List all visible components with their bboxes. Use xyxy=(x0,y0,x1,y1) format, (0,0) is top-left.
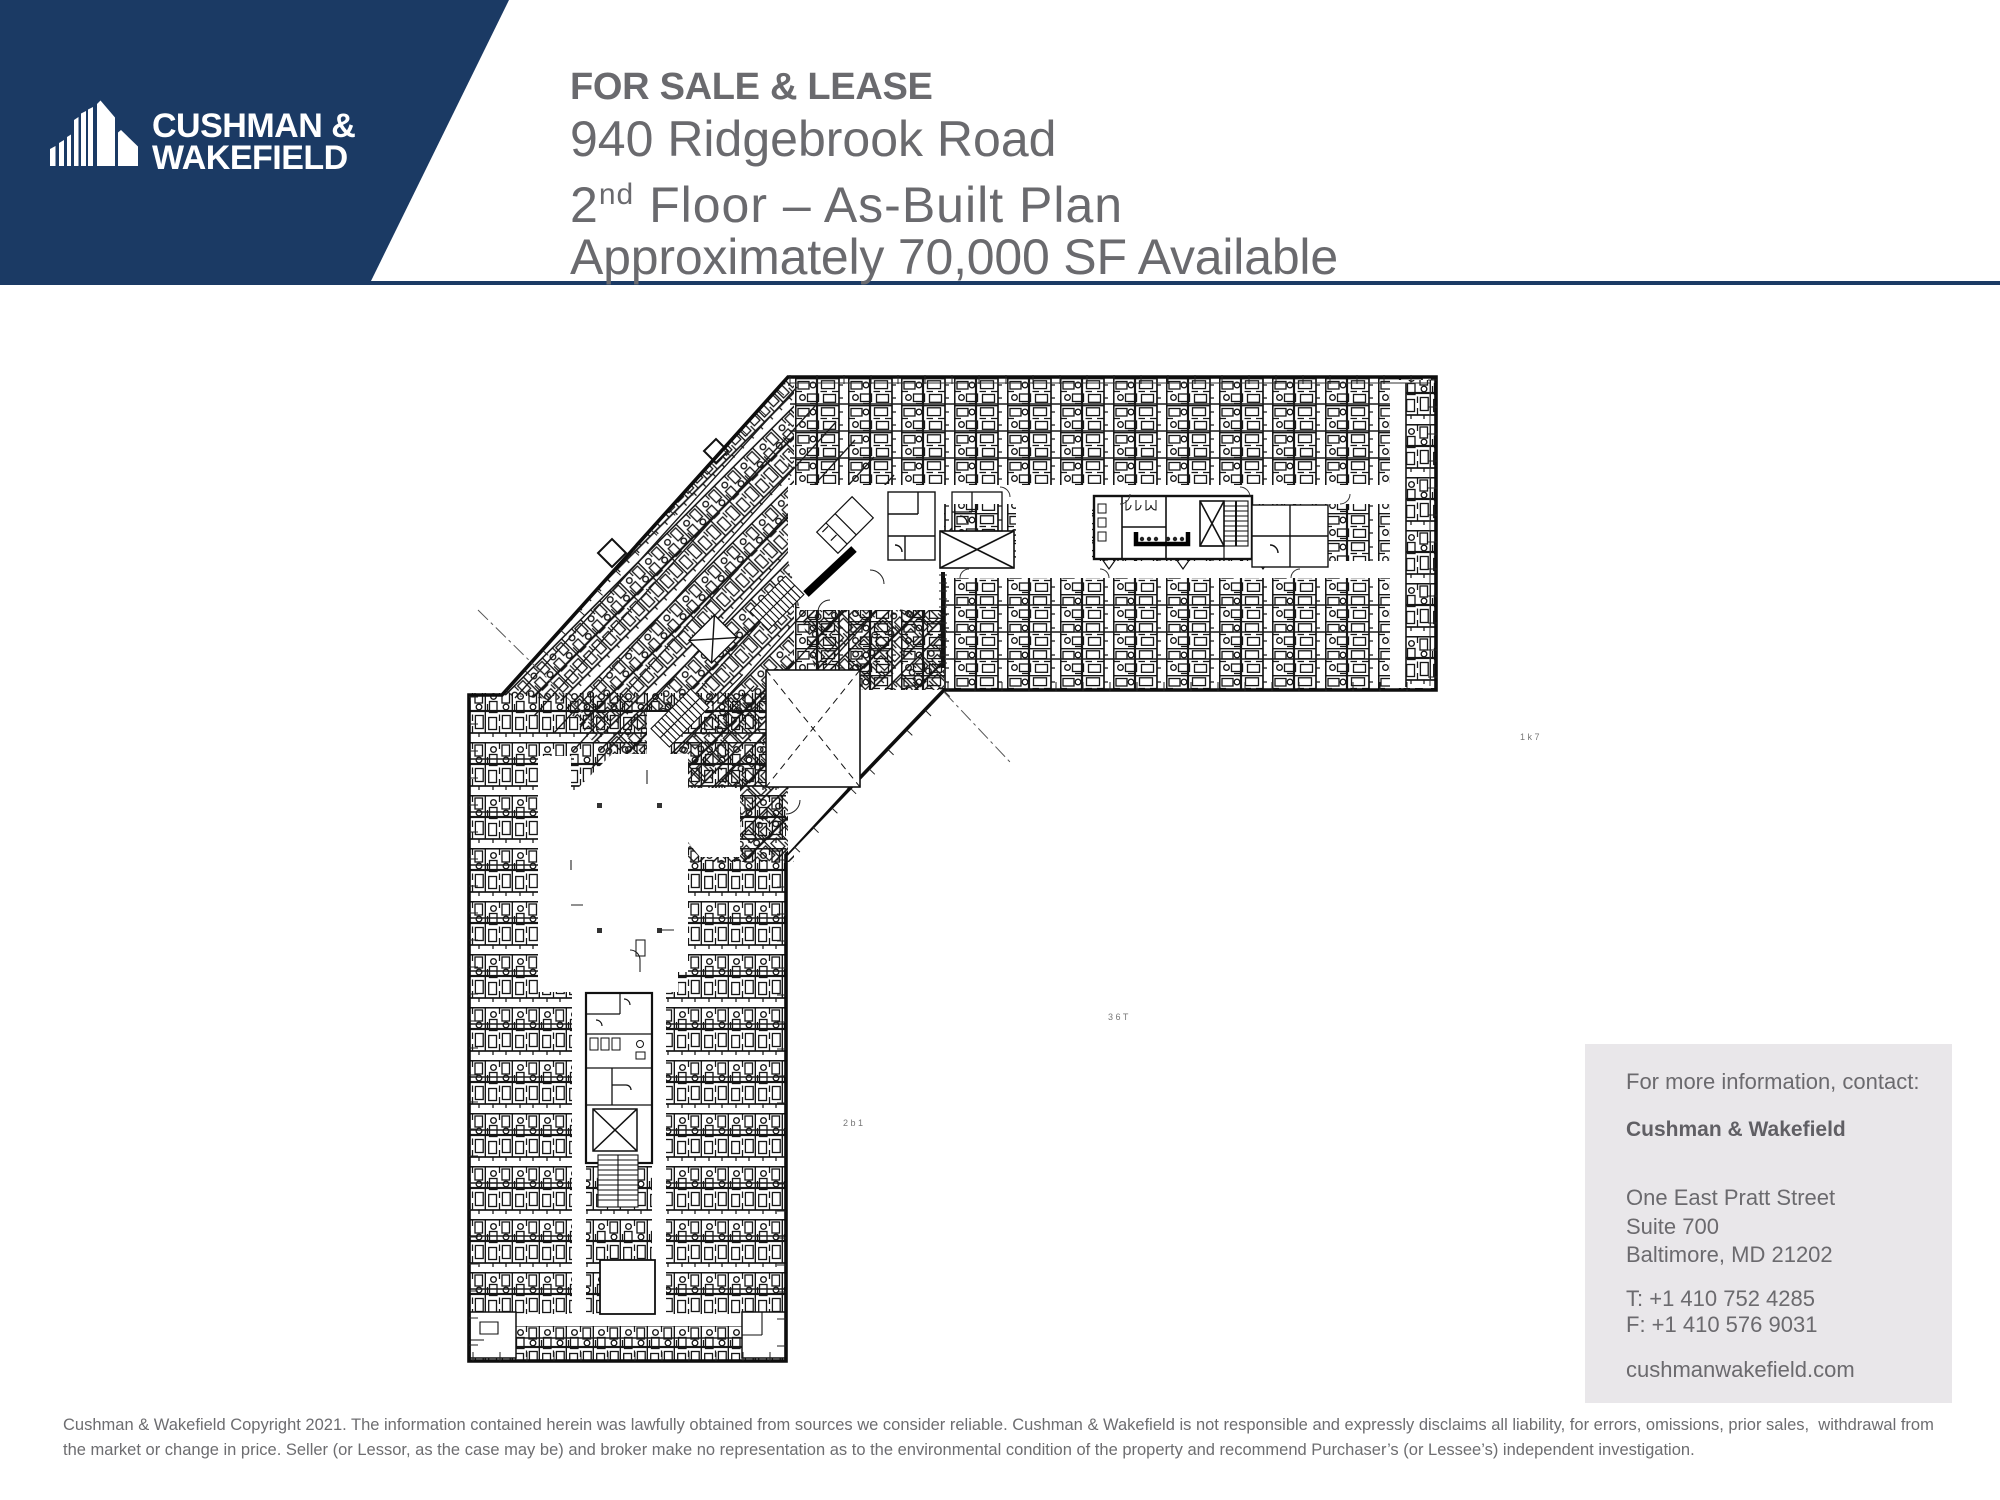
svg-text:2 b 1: 2 b 1 xyxy=(843,1118,863,1128)
svg-text:1 k 7: 1 k 7 xyxy=(1520,732,1540,742)
svg-text:3 6 T: 3 6 T xyxy=(1108,1012,1129,1022)
